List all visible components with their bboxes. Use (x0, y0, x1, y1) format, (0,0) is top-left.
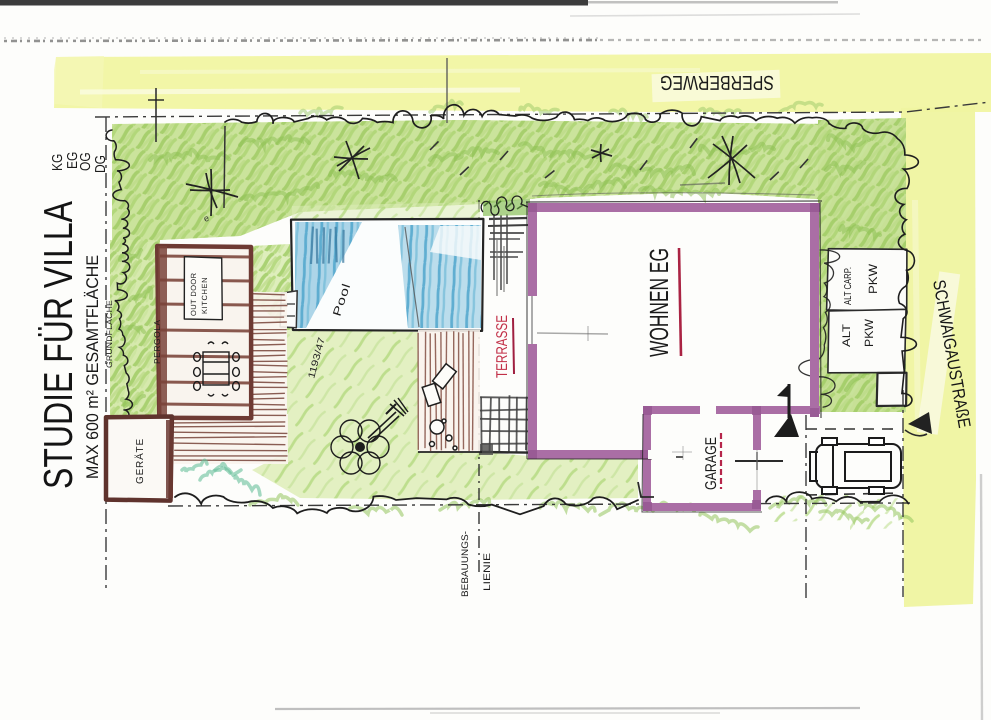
svg-text:SPERBERWEG: SPERBERWEG (660, 71, 774, 94)
svg-text:GARAGE: GARAGE (702, 437, 720, 490)
svg-text:BEBAUUNGS-: BEBAUUNGS- (460, 531, 471, 597)
svg-text:ALT CARP.: ALT CARP. (843, 267, 854, 305)
svg-text:PERGOLA: PERGOLA (152, 319, 162, 364)
svg-text:MAX 600 m² GESAMTFLÄCHE: MAX 600 m² GESAMTFLÄCHE (82, 255, 102, 479)
svg-text:PKW: PKW (862, 318, 876, 347)
svg-text:ALT: ALT (841, 324, 853, 347)
svg-text:OUT DOOR: OUT DOOR (189, 272, 198, 316)
svg-text:TERRASSE: TERRASSE (493, 315, 511, 378)
svg-text:STUDIE FÜR VILLA: STUDIE FÜR VILLA (36, 201, 81, 489)
svg-text:GERÄTE: GERÄTE (134, 438, 146, 484)
svg-text:GRUNDFLÄCHE: GRUNDFLÄCHE (105, 300, 114, 368)
svg-text:KITCHEN: KITCHEN (200, 277, 209, 314)
svg-text:PKW: PKW (866, 263, 880, 294)
svg-text:WOHNEN EG: WOHNEN EG (645, 248, 674, 357)
svg-text:DG: DG (92, 155, 109, 173)
svg-text:LIENIE: LIENIE (482, 553, 493, 591)
